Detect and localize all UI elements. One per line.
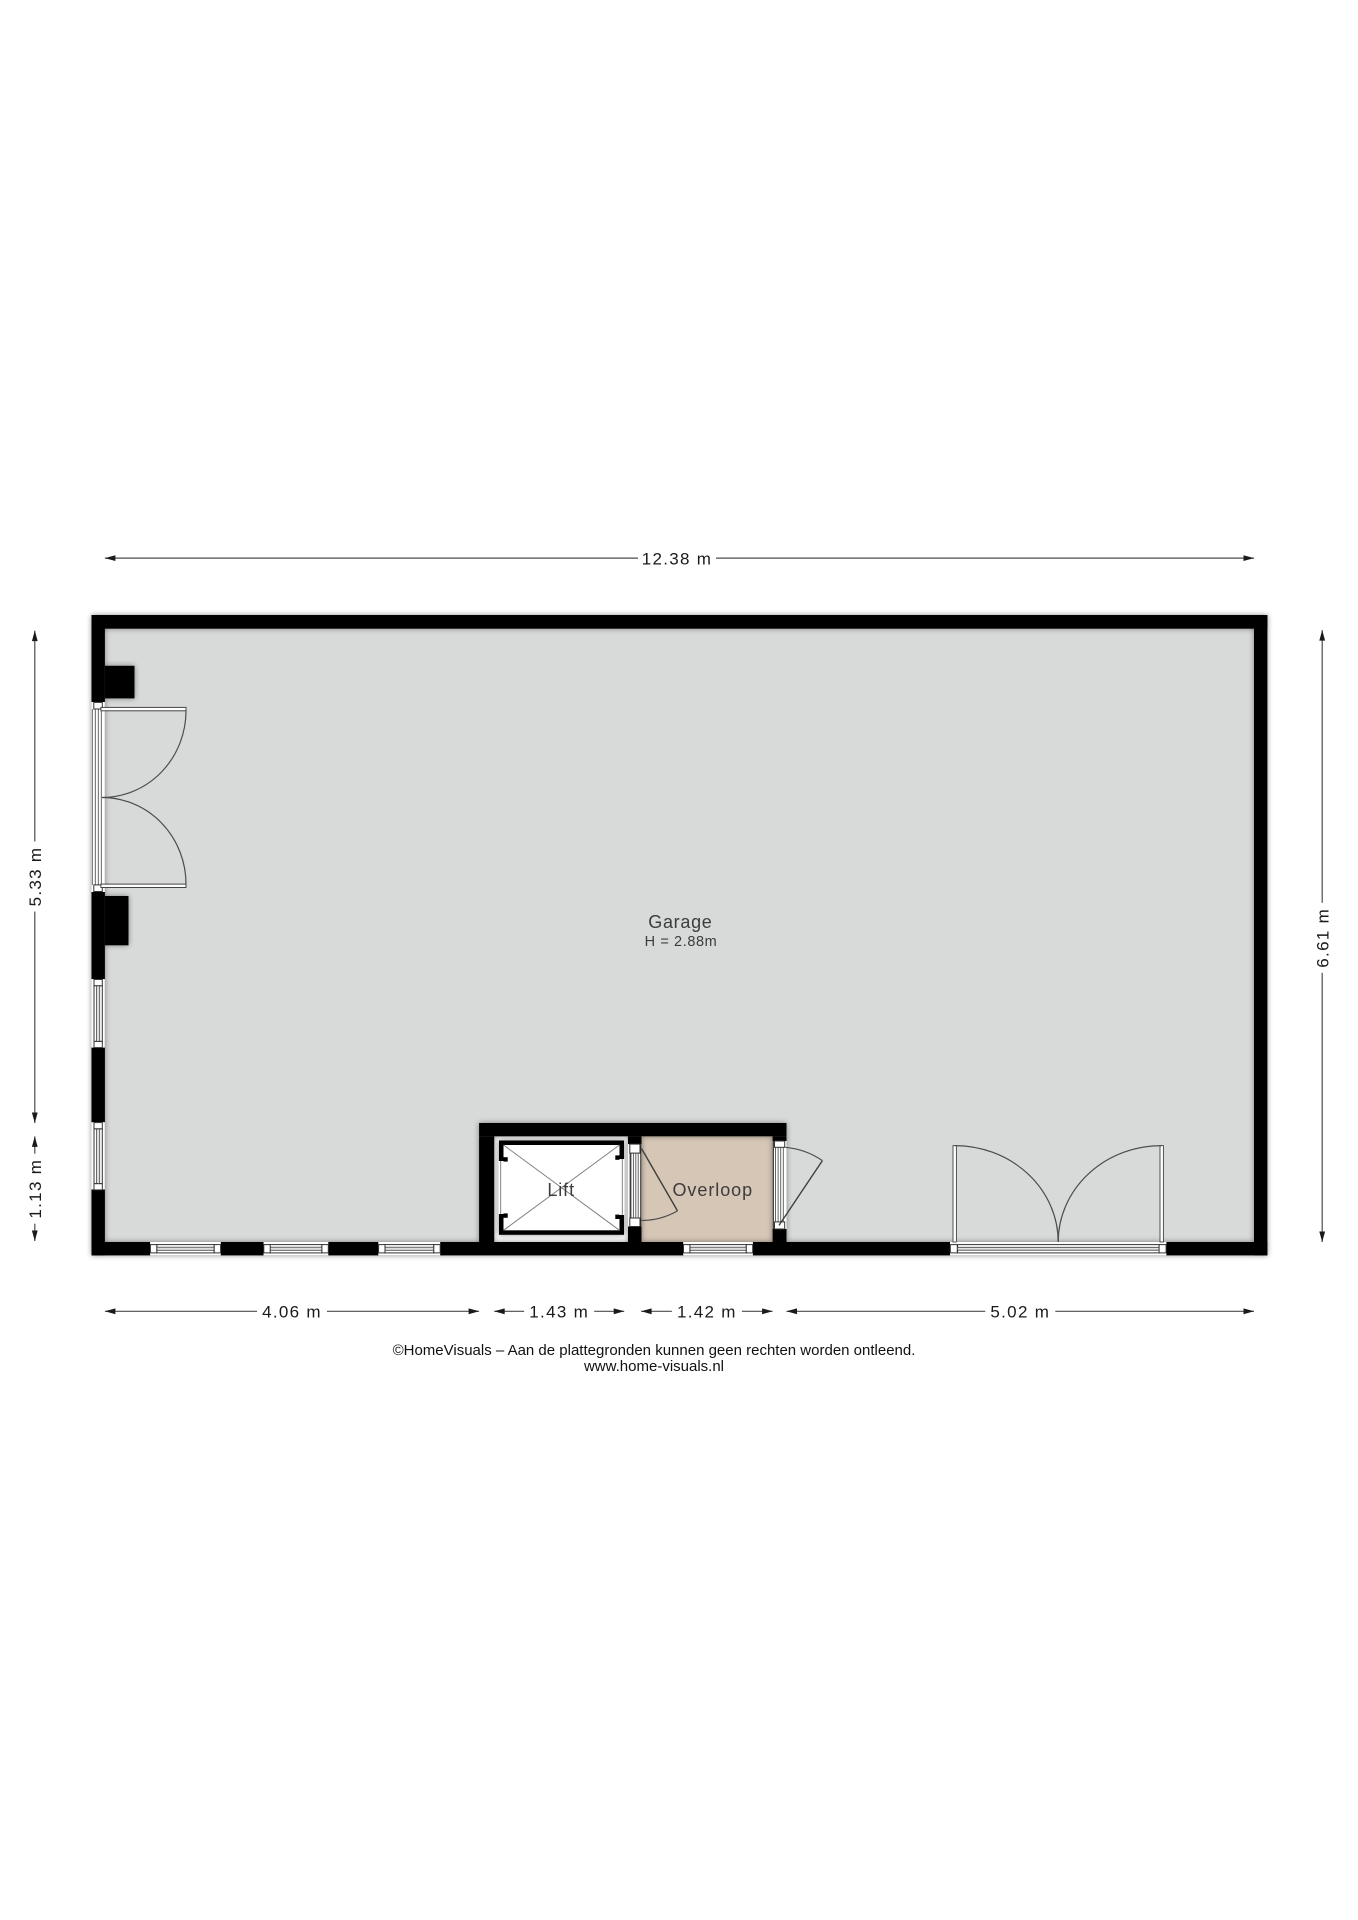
svg-text:12.38 m: 12.38 m xyxy=(642,549,713,568)
svg-text:1.42 m: 1.42 m xyxy=(677,1303,737,1322)
svg-text:6.61 m: 6.61 m xyxy=(1313,908,1332,968)
svg-text:5.33 m: 5.33 m xyxy=(26,847,45,907)
svg-text:www.home-visuals.nl: www.home-visuals.nl xyxy=(583,1358,724,1375)
svg-text:5.02 m: 5.02 m xyxy=(990,1303,1050,1322)
svg-text:1.13 m: 1.13 m xyxy=(26,1159,45,1219)
svg-text:Overloop: Overloop xyxy=(672,1180,753,1200)
svg-text:1.43 m: 1.43 m xyxy=(529,1303,589,1322)
svg-text:4.06 m: 4.06 m xyxy=(262,1303,322,1322)
svg-text:©HomeVisuals – Aan de plattegr: ©HomeVisuals – Aan de plattegronden kunn… xyxy=(393,1342,916,1359)
svg-text:H = 2.88m: H = 2.88m xyxy=(645,934,718,950)
svg-text:Lift: Lift xyxy=(547,1180,575,1200)
svg-text:Garage: Garage xyxy=(648,912,712,932)
